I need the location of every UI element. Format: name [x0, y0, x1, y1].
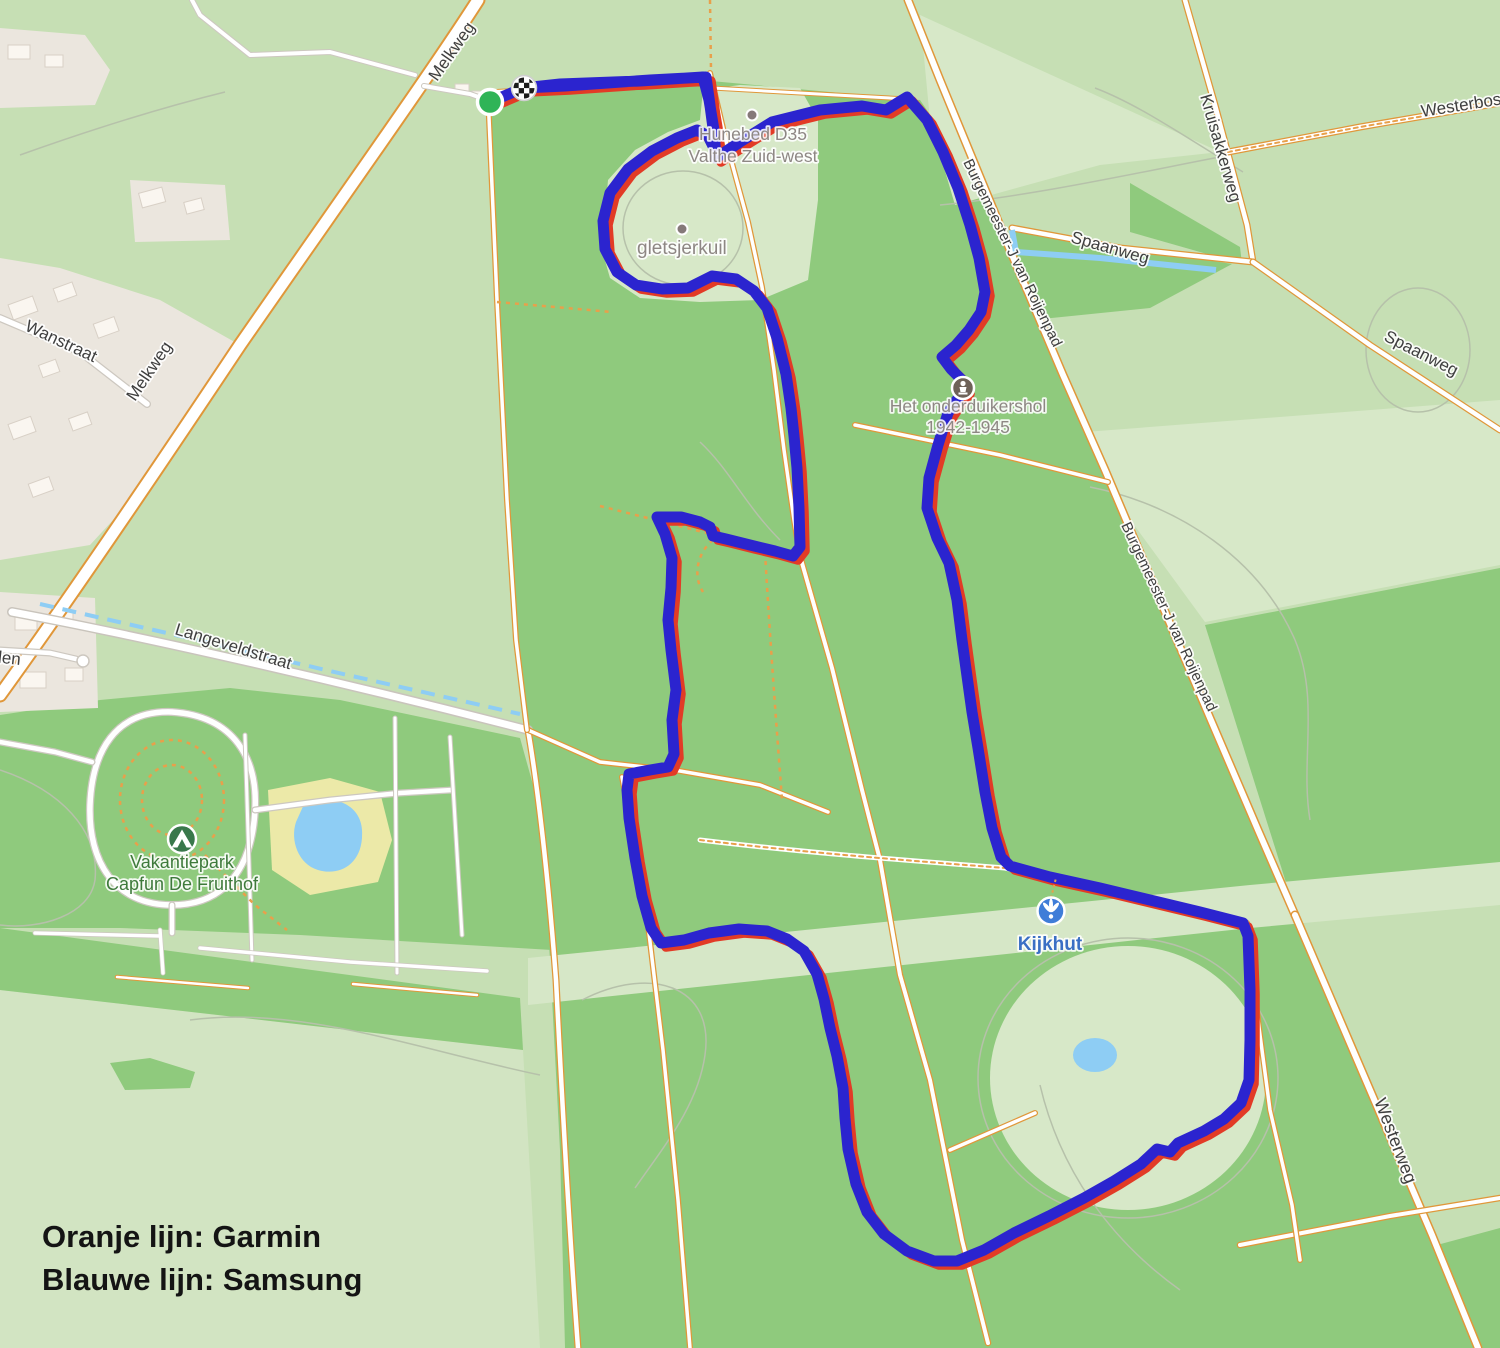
poi-label-onderduikershol-1: Het onderduikershol [890, 396, 1047, 416]
hunebed-poi-dot [747, 110, 758, 121]
poi-label-kijkhut: Kijkhut [1018, 934, 1083, 955]
terrain-areas [0, 0, 1500, 1348]
poi-label-vakantiepark-1: Vakantiepark [130, 852, 235, 872]
map-screenshot: Melkweg Melkweg Wanstraat Langeveldstraa… [0, 0, 1500, 1348]
legend-garmin: Oranje lijn: Garmin [42, 1219, 321, 1254]
road-label-den-partial: den [0, 647, 22, 669]
legend-samsung: Blauwe lijn: Samsung [42, 1262, 362, 1297]
poi-label-gletsjerkuil: gletsjerkuil [637, 238, 727, 259]
lake-campground [294, 799, 362, 871]
map-canvas: Melkweg Melkweg Wanstraat Langeveldstraa… [0, 0, 1500, 1348]
poi-label-onderduikershol-2: 1942-1945 [926, 417, 1010, 437]
poi-label-hunebed-1: Hunebed D35 [699, 124, 807, 144]
gletsjerkuil-poi-dot [677, 224, 688, 235]
lake-kijkhut [1073, 1038, 1117, 1072]
campground-icon [168, 825, 196, 853]
poi-label-vakantiepark-2: Capfun De Fruithof [106, 874, 259, 894]
start-marker-icon [478, 90, 503, 115]
poi-label-hunebed-2: Valthe Zuid-west [688, 146, 817, 166]
